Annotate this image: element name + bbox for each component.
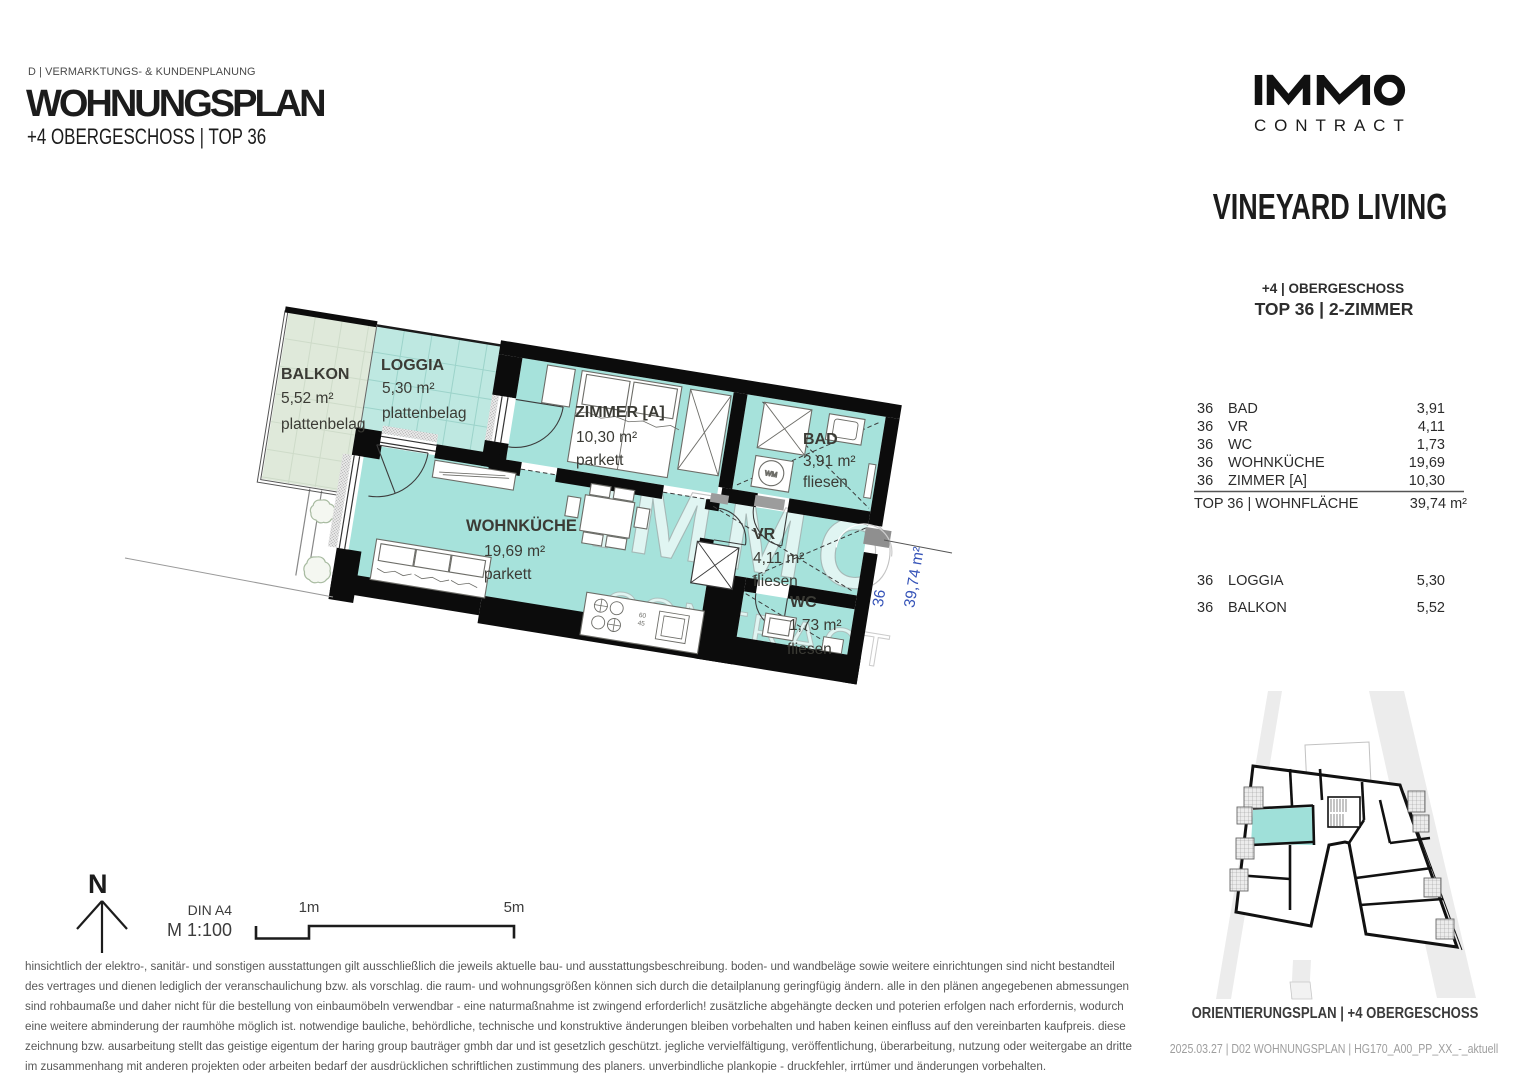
svg-text:3,91: 3,91 (1417, 401, 1445, 417)
svg-text:WOHNKÜCHE: WOHNKÜCHE (466, 516, 577, 535)
svg-text:D | VERMARKTUNGS- & KUNDENPLAN: D | VERMARKTUNGS- & KUNDENPLANUNG (28, 66, 256, 78)
svg-text:plattenbelag: plattenbelag (382, 405, 466, 422)
svg-text:5,52: 5,52 (1417, 600, 1445, 616)
svg-text:36: 36 (1197, 473, 1213, 489)
svg-text:DIN A4: DIN A4 (188, 902, 233, 918)
svg-text:WC: WC (1228, 437, 1252, 453)
svg-text:ORIENTIERUNGSPLAN | +4 OBERGES: ORIENTIERUNGSPLAN | +4 OBERGESCHOSS (1192, 1005, 1479, 1022)
svg-text:ZIMMER [A]: ZIMMER [A] (1228, 473, 1307, 489)
svg-text:4,11: 4,11 (1418, 419, 1445, 435)
svg-text:36: 36 (1197, 573, 1213, 589)
svg-text:4,11 m²: 4,11 m² (753, 550, 804, 567)
svg-text:36: 36 (1197, 600, 1213, 616)
svg-text:WC: WC (790, 594, 817, 611)
svg-text:36: 36 (870, 588, 890, 608)
svg-text:parkett: parkett (576, 452, 624, 469)
svg-text:parkett: parkett (484, 566, 532, 583)
svg-text:5m: 5m (504, 899, 525, 916)
svg-text:fliesen: fliesen (753, 573, 798, 590)
svg-text:TOP 36 | 2-ZIMMER: TOP 36 | 2-ZIMMER (1255, 299, 1414, 319)
svg-text:36: 36 (1197, 401, 1213, 417)
svg-text:TOP 36 | WOHNFLÄCHE: TOP 36 | WOHNFLÄCHE (1194, 495, 1359, 512)
svg-text:19,69: 19,69 (1409, 455, 1445, 471)
svg-text:LOGGIA: LOGGIA (1228, 573, 1284, 589)
svg-text:hinsichtlich der elektro-, san: hinsichtlich der elektro-, sanitär- und … (25, 960, 1115, 973)
svg-text:VR: VR (1228, 419, 1248, 435)
svg-text:CONTRACT: CONTRACT (1254, 116, 1412, 135)
svg-text:zeichnung bzw. ausarbeitung st: zeichnung bzw. ausarbeitung stellt das g… (25, 1040, 1132, 1053)
svg-text:BALKON: BALKON (1228, 600, 1287, 616)
svg-text:sind rohbaumaße und daher nich: sind rohbaumaße und daher nicht für die … (25, 1000, 1124, 1013)
svg-text:im zusammenhang mit anderen pr: im zusammenhang mit anderen projekten od… (25, 1060, 1046, 1073)
svg-text:36: 36 (1197, 419, 1213, 435)
svg-text:eine weitere abminderung der r: eine weitere abminderung der raumhöhe mö… (25, 1020, 1126, 1033)
svg-text:10,30: 10,30 (1409, 473, 1445, 489)
svg-text:+4 OBERGESCHOSS | TOP 36: +4 OBERGESCHOSS | TOP 36 (27, 125, 266, 150)
svg-text:VINEYARD LIVING: VINEYARD LIVING (1213, 186, 1448, 227)
svg-text:5,30: 5,30 (1417, 573, 1445, 589)
svg-text:1m: 1m (299, 899, 320, 916)
svg-text:des vertrages und dienen ledig: des vertrages und dienen lediglich der v… (25, 980, 1129, 993)
svg-text:fliesen: fliesen (803, 474, 848, 491)
svg-text:LOGGIA: LOGGIA (381, 357, 445, 374)
svg-text:19,69 m²: 19,69 m² (484, 543, 545, 560)
svg-text:10,30 m²: 10,30 m² (576, 429, 637, 446)
svg-text:ZIMMER [A]: ZIMMER [A] (575, 404, 665, 421)
svg-text:WOHNUNGSPLAN: WOHNUNGSPLAN (26, 83, 324, 125)
svg-text:5,30 m²: 5,30 m² (382, 380, 435, 397)
svg-text:WOHNKÜCHE: WOHNKÜCHE (1228, 453, 1325, 471)
svg-text:plattenbelag: plattenbelag (281, 416, 365, 433)
svg-text:VR: VR (753, 526, 776, 543)
svg-text:3,91 m²: 3,91 m² (803, 453, 856, 470)
svg-text:BAD: BAD (1228, 401, 1258, 417)
svg-text:5,52 m²: 5,52 m² (281, 390, 334, 407)
svg-text:1,73: 1,73 (1417, 437, 1445, 453)
svg-text:36: 36 (1197, 455, 1213, 471)
svg-text:BALKON: BALKON (281, 366, 349, 383)
svg-text:39,74 m²: 39,74 m² (1410, 496, 1467, 512)
svg-text:36: 36 (1197, 437, 1213, 453)
svg-text:1,73 m²: 1,73 m² (789, 617, 842, 634)
svg-text:fliesen: fliesen (787, 641, 832, 658)
svg-text:BAD: BAD (803, 431, 838, 448)
svg-text:+4 | OBERGESCHOSS: +4 | OBERGESCHOSS (1262, 281, 1404, 296)
svg-text:2025.03.27 | D02 WOHNUNGSPLAN: 2025.03.27 | D02 WOHNUNGSPLAN | HG170_A0… (1170, 1041, 1498, 1056)
svg-text:N: N (88, 869, 108, 899)
svg-text:M 1:100: M 1:100 (167, 920, 232, 940)
